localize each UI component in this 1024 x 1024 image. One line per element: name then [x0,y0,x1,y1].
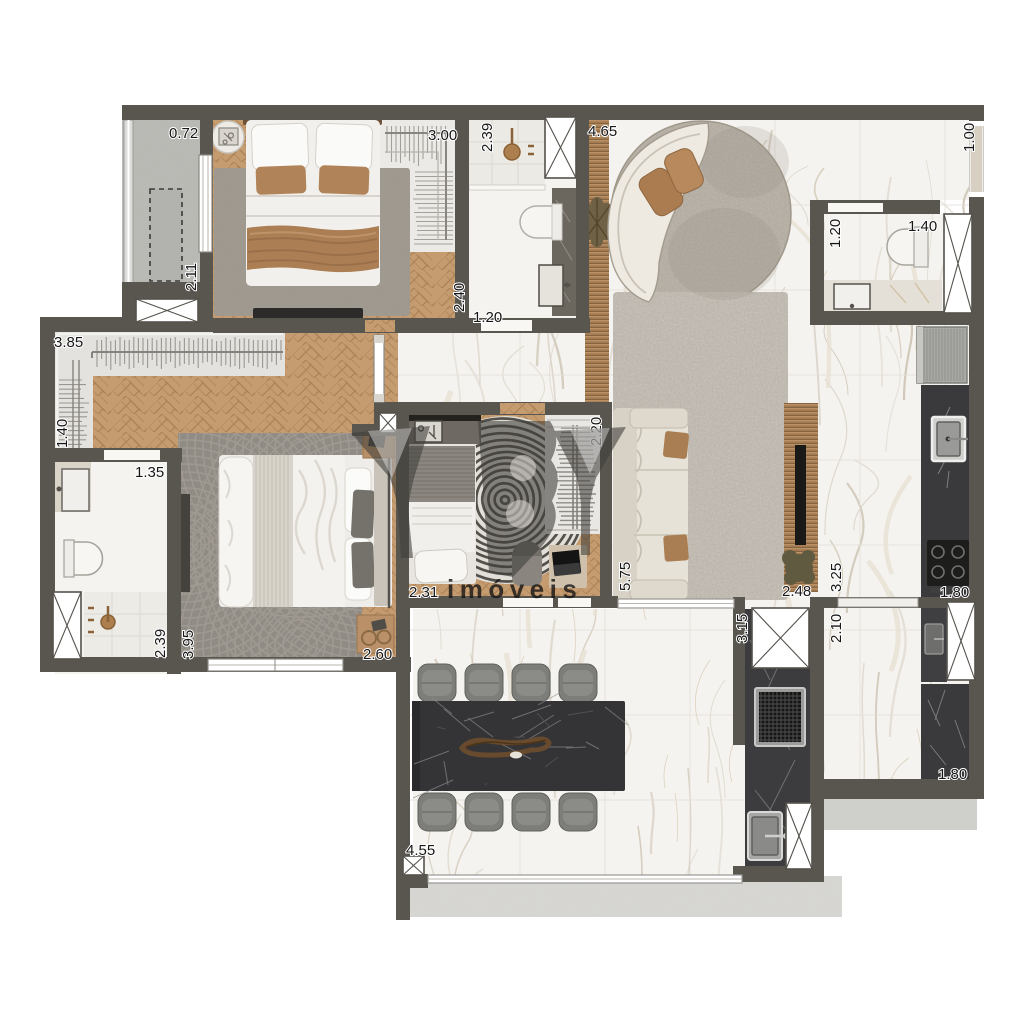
svg-text:2.39: 2.39 [152,629,169,658]
svg-text:2.39: 2.39 [479,123,496,152]
svg-text:1.80: 1.80 [938,766,967,783]
svg-text:3.15: 3.15 [734,614,751,643]
svg-text:1.20: 1.20 [827,219,844,248]
svg-text:2.11: 2.11 [183,263,200,291]
svg-text:3.85: 3.85 [54,334,83,351]
svg-text:1.20: 1.20 [473,309,502,326]
svg-text:2.40: 2.40 [451,283,468,312]
svg-text:3.25: 3.25 [828,563,845,592]
svg-text:1.80: 1.80 [940,584,969,601]
svg-text:3.00: 3.00 [428,127,457,144]
svg-text:0.72: 0.72 [169,125,198,142]
svg-text:1.35: 1.35 [135,464,164,481]
svg-text:4.55: 4.55 [406,842,435,859]
svg-text:3.95: 3.95 [180,630,197,659]
svg-text:2.31: 2.31 [409,584,438,601]
svg-text:2.48: 2.48 [782,583,811,600]
svg-text:5.75: 5.75 [617,562,634,591]
svg-text:imóveis: imóveis [447,574,582,604]
svg-text:1.40: 1.40 [54,419,71,448]
svg-text:2.60: 2.60 [363,646,392,663]
svg-text:1.00: 1.00 [961,123,978,152]
svg-text:4.65: 4.65 [588,123,617,140]
svg-text:1.40: 1.40 [908,218,937,235]
svg-text:2.10: 2.10 [828,614,845,643]
